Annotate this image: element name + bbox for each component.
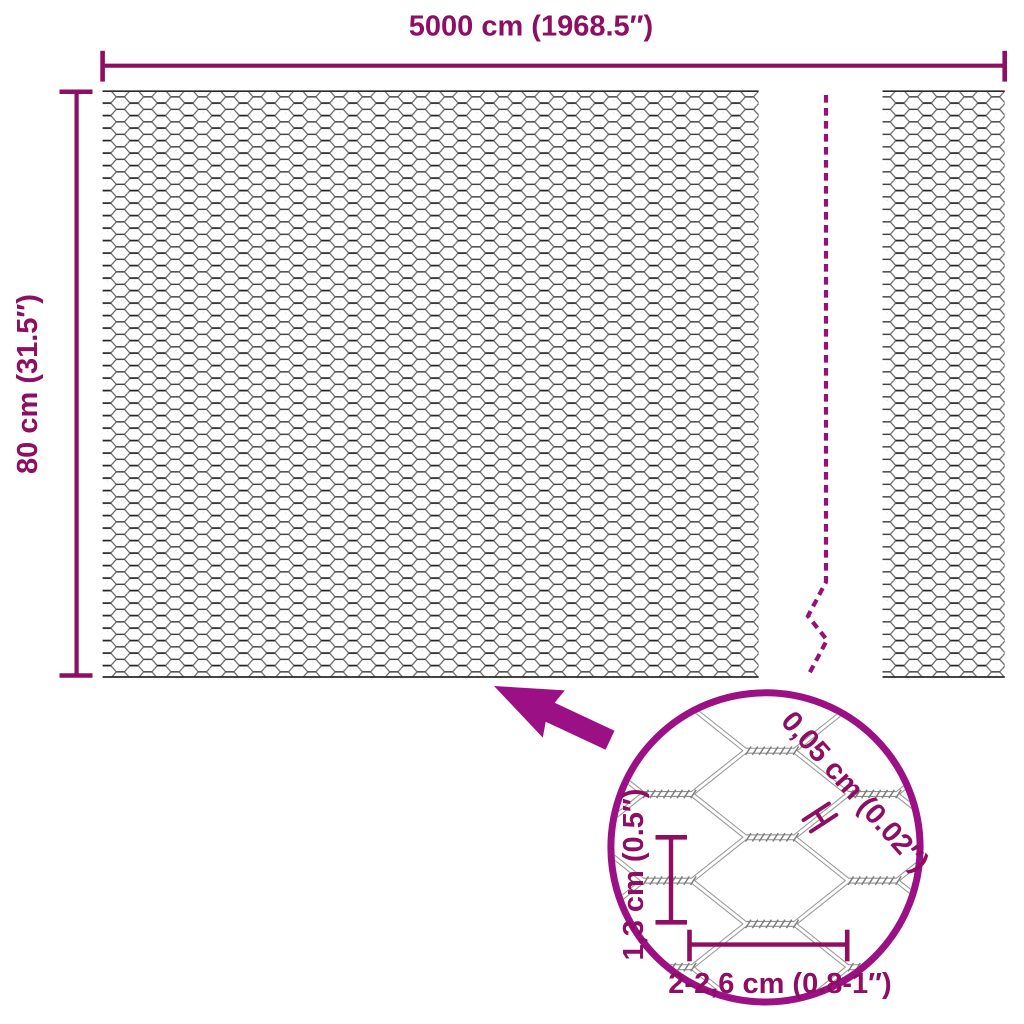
svg-text:2-2,6 cm (0.8-1″): 2-2,6 cm (0.8-1″) <box>668 968 891 1000</box>
svg-text:1,3 cm (0.5″): 1,3 cm (0.5″) <box>618 789 650 961</box>
svg-text:5000 cm (1968.5″): 5000 cm (1968.5″) <box>409 11 653 43</box>
svg-text:80 cm (31.5″): 80 cm (31.5″) <box>12 294 44 474</box>
